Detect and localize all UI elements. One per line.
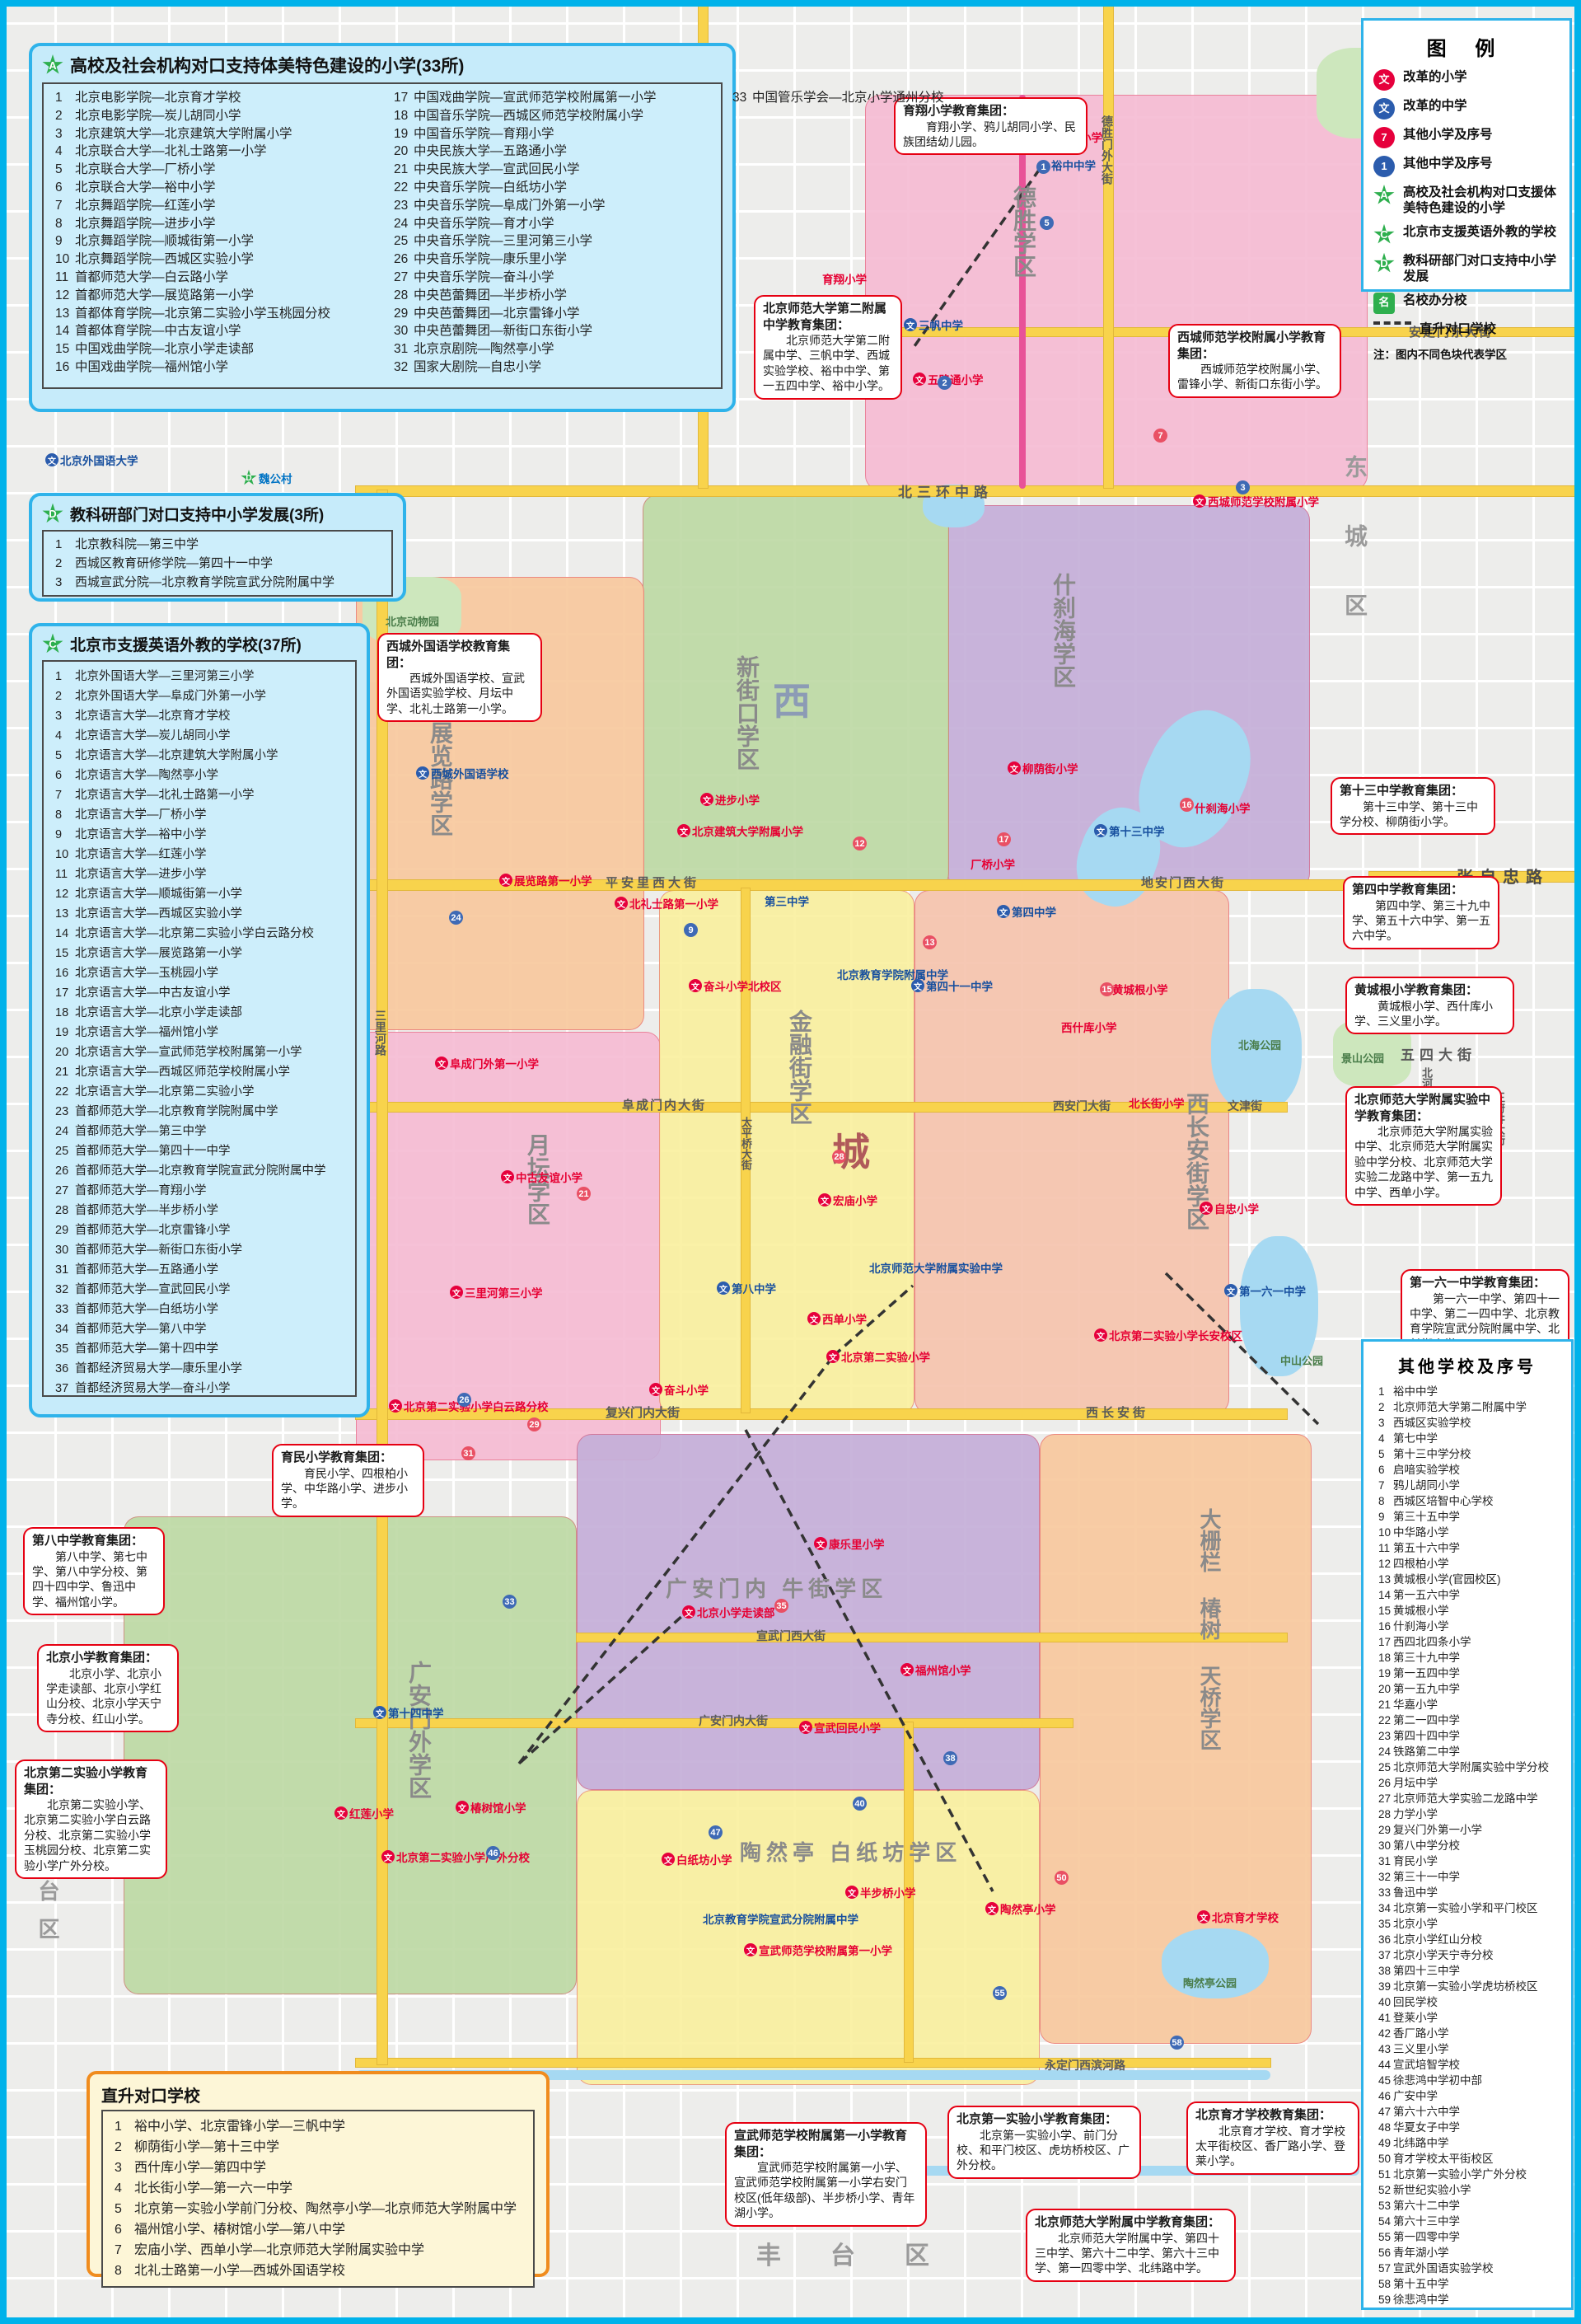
school-number-marker: 31 <box>461 1446 475 1460</box>
callout-title: 育民小学教育集团： <box>281 1450 415 1466</box>
list-item: 15北京语言大学—展览路第一小学 <box>50 944 348 963</box>
map-text-label: 地安门西大街 <box>1141 874 1225 891</box>
education-group-callout: 北京师范大学附属中学教育集团：北京师范大学附属中学、第四十三中学、第六十二中学、… <box>1026 2209 1236 2282</box>
legend-item: 1其他中学及序号 <box>1373 156 1560 177</box>
map-text-label: 什刹海学区 <box>1046 573 1079 688</box>
map-text-label: 丰台区 <box>756 2235 979 2271</box>
list-item: 12四根柏小学 <box>1373 1556 1561 1572</box>
reform-middle-icon: 文 <box>1373 98 1395 119</box>
callout-body: 宣武师范学校附属第一小学、宣武师范学校附属第一小学右安门校区(低年级部)、半步桥… <box>734 2160 918 2221</box>
list-item: 3西什库小学—第四中学 <box>110 2158 526 2178</box>
school-number-marker: 55 <box>993 1986 1007 2000</box>
reform-primary-icon: 文 <box>744 1943 757 1956</box>
map-text-label: 永定门西滨河路 <box>1045 2057 1125 2073</box>
list-item: 2西城区教育研修学院—第四十一中学 <box>50 554 385 573</box>
list-item: 7北京语言大学—北礼士路第一小学 <box>50 785 348 805</box>
map-text-label: 德胜学区 <box>1007 185 1040 278</box>
school-label: 文北京建筑大学附属小学 <box>677 822 803 839</box>
through-admission-line-icon <box>1373 321 1411 325</box>
school-number-marker: 9 <box>684 923 698 937</box>
reform-primary-icon: 文 <box>1193 494 1206 508</box>
list-item: 30中央芭蕾舞团—新街口东街小学 <box>389 322 714 340</box>
road-xuanwumenxi <box>577 1633 1287 1642</box>
list-item: 23第四十四中学 <box>1373 1728 1561 1744</box>
list-item: 1裕中小学、北京雷锋小学—三帆中学 <box>110 2116 526 2137</box>
star-c-icon: C <box>42 634 63 655</box>
list-item: 41登莱小学 <box>1373 2010 1561 2026</box>
list-item: 25北京师范大学附属实验中学分校 <box>1373 1759 1561 1775</box>
list-item: 29首都师范大学—北京雷锋小学 <box>50 1221 348 1240</box>
school-label: 文北京第二实验小学长安校区 <box>1094 1327 1242 1343</box>
list-box-d-title: 教科研部门对口支持中小学发展(3所) <box>70 503 324 525</box>
callout-title: 北京第二实验小学教育集团： <box>24 1765 158 1797</box>
school-label: 文红莲小学 <box>334 1805 394 1821</box>
through-admission-items: 1裕中小学、北京雷锋小学—三帆中学2柳荫街小学—第十三中学3西什库小学—第四中学… <box>110 2116 526 2281</box>
list-item: 22中央音乐学院—白纸坊小学 <box>389 179 714 197</box>
map-text-label: 东城区 <box>1338 455 1371 663</box>
school-label: 文阜成门外第一小学 <box>435 1055 539 1071</box>
list-item: 53第六十二中学 <box>1373 2198 1561 2214</box>
callout-title: 北京第一实验小学教育集团： <box>957 2111 1132 2128</box>
school-number-marker: 40 <box>853 1797 867 1811</box>
list-item: 43三义里小学 <box>1373 2041 1561 2057</box>
school-label: 文椿树馆小学 <box>456 1799 526 1816</box>
school-label: 文白纸坊小学 <box>662 1851 732 1867</box>
reform-primary-icon: 文 <box>1373 69 1395 91</box>
list-item: 2北京电影学院—炭儿胡同小学 <box>50 107 376 125</box>
callout-title: 北京师范大学附属实验中学教育集团： <box>1354 1092 1493 1124</box>
list-item: 35北京小学 <box>1373 1916 1561 1932</box>
education-group-callout: 北京第二实验小学教育集团：北京第二实验小学、北京第二实验小学白云路分校、北京第二… <box>15 1759 167 1879</box>
education-group-callout: 西城师范学校附属小学教育集团：西城师范学校附属小学、雷锋小学、新街口东街小学。 <box>1168 324 1341 398</box>
district-guangwai-shape <box>124 1516 577 1994</box>
list-item: 19中国音乐学院—育翔小学 <box>389 125 714 143</box>
school-number-marker: 38 <box>943 1751 957 1765</box>
list-item: 3西城区实验学校 <box>1373 1415 1561 1431</box>
reform-middle-icon: 文 <box>904 318 917 331</box>
list-item: 1北京电影学院—北京育才学校 <box>50 89 376 107</box>
map-text-label: 平安里西大街 <box>606 874 699 891</box>
school-label: 黄城根小学 <box>1112 981 1168 997</box>
map-text-label: 北海公园 <box>1238 1037 1281 1052</box>
list-item: 21中央民族大学—宣武回民小学 <box>389 161 714 179</box>
map-stage: A 高校及社会机构对口支持体美特色建设的小学(33所) 1北京电影学院—北京育才… <box>0 0 1581 2324</box>
list-item: 6北京联合大学—裕中小学 <box>50 179 376 197</box>
callout-body: 北京第二实验小学、北京第二实验小学白云路分校、北京第二实验小学玉桃园分校、北京第… <box>24 1797 158 1873</box>
list-item: 27首都师范大学—育翔小学 <box>50 1181 348 1201</box>
callout-title: 第一六一中学教育集团： <box>1410 1275 1560 1291</box>
education-group-callout: 第十三中学教育集团：第十三中学、第十三中学分校、柳荫街小学。 <box>1331 777 1495 835</box>
list-item: 26中央音乐学院—康乐里小学 <box>389 251 714 269</box>
education-group-callout: 宣武师范学校附属第一小学教育集团：宣武师范学校附属第一小学、宣武师范学校附属第一… <box>725 2122 927 2227</box>
list-box-c-items: 1北京外国语大学—三里河第三小学2北京外国语大学—阜成门外第一小学3北京语言大学… <box>50 667 348 1399</box>
school-label: 文半步桥小学 <box>845 1884 916 1900</box>
list-item: 14第一五六中学 <box>1373 1587 1561 1603</box>
list-item: 29复兴门外第一小学 <box>1373 1822 1561 1838</box>
education-group-callout: 北京师范大学附属实验中学教育集团：北京师范大学附属实验中学、北京师范大学附属实验… <box>1345 1086 1502 1206</box>
road-deshengmenwai <box>1104 7 1113 488</box>
list-item: 9北京语言大学—裕中小学 <box>50 825 348 845</box>
list-item: 29中央芭蕾舞团—北京雷锋小学 <box>389 305 714 323</box>
map-text-label: 德胜门外大街 <box>1099 115 1116 185</box>
reform-middle-icon: 文 <box>997 905 1010 918</box>
through-admission-box: 直升对口学校 1裕中小学、北京雷锋小学—三帆中学2柳荫街小学—第十三中学3西什库… <box>87 2071 550 2277</box>
legend-item-label: 北京市支援英语外教的学校 <box>1403 224 1556 240</box>
callout-body: 北京师范大学附属实验中学、北京师范大学附属实验中学分校、北京师范大学实验二龙路中… <box>1354 1124 1493 1200</box>
legend-item: 文改革的小学 <box>1373 69 1560 91</box>
list-item: 11首都师范大学—白云路小学 <box>50 269 376 287</box>
school-number-marker: 15 <box>1100 982 1114 996</box>
map-text-label: 宣武门西大街 <box>756 1628 826 1644</box>
reform-primary-icon: 文 <box>845 1886 858 1899</box>
legend-box: 图 例 文改革的小学文改革的中学7其他小学及序号1其他中学及序号A高校及社会机构… <box>1361 18 1572 292</box>
reform-primary-icon: 文 <box>1008 761 1021 775</box>
list-item: 21北京语言大学—西城区师范学校附属小学 <box>50 1062 348 1082</box>
list-item: 28首都师范大学—半步桥小学 <box>50 1201 348 1221</box>
list-item: 51北京第一实验小学广外分校 <box>1373 2167 1561 2182</box>
callout-body: 西城外国语学校、宣武外国语实验学校、月坛中学、北礼士路第一小学。 <box>386 671 533 716</box>
list-item: 10中华路小学 <box>1373 1525 1561 1540</box>
reform-primary-icon: 文 <box>389 1399 402 1413</box>
reform-primary-icon: 文 <box>900 1663 914 1676</box>
through-admission-title: 直升对口学校 <box>101 2083 535 2106</box>
school-label: 北京教育学院宣武分院附属中学 <box>703 1910 858 1927</box>
school-label: 文第四十一中学 <box>911 977 993 994</box>
education-group-callout: 第八中学教育集团：第八中学、第七中学、第八中学分校、第四十四中学、鲁迅中学、福州… <box>23 1527 165 1615</box>
reform-primary-icon: 文 <box>807 1312 821 1325</box>
reform-primary-icon: 文 <box>456 1801 469 1814</box>
list-item: 42香厂路小学 <box>1373 2026 1561 2041</box>
list-item: 59徐悲鸿中学 <box>1373 2292 1561 2308</box>
list-item: 5北京联合大学—厂桥小学 <box>50 161 376 179</box>
list-item: 13首都体育学院—北京第二实验小学玉桃园分校 <box>50 305 376 323</box>
list-box-research-depts: D 教科研部门对口支持中小学发展(3所) 1北京教科院—第三中学2西城区教育研修… <box>29 493 406 602</box>
school-number-marker: 12 <box>853 836 867 850</box>
list-item: 1北京外国语大学—三里河第三小学 <box>50 667 348 686</box>
list-item: 34北京第一实验小学和平门校区 <box>1373 1900 1561 1916</box>
list-item: 27中央音乐学院—奋斗小学 <box>389 269 714 287</box>
reform-middle-icon: 文 <box>373 1706 386 1719</box>
list-item: 1裕中中学 <box>1373 1384 1561 1399</box>
reform-primary-icon: 文 <box>435 1057 448 1070</box>
callout-body: 西城师范学校附属小学、雷锋小学、新街口东街小学。 <box>1177 362 1332 392</box>
list-item: 2柳荫街小学—第十三中学 <box>110 2137 526 2158</box>
list-item: 17北京语言大学—中古友谊小学 <box>50 983 348 1003</box>
school-label: 文北京第二实验小学 <box>826 1348 930 1365</box>
list-item: 5北京第一实验小学前门分校、陶然亭小学—北京师范大学附属中学 <box>110 2199 526 2219</box>
other-schools-title: 其他学校及序号 <box>1373 1353 1561 1377</box>
school-number-marker: 28 <box>832 1150 846 1164</box>
school-number-marker: 35 <box>774 1599 788 1613</box>
reform-primary-icon: 文 <box>662 1853 675 1866</box>
list-item: 33鲁迅中学 <box>1373 1885 1561 1900</box>
map-text-label: 陶然亭公园 <box>1183 1975 1237 1990</box>
school-number-marker: 16 <box>1180 798 1194 812</box>
list-item: 20中央民族大学—五路通小学 <box>389 143 714 161</box>
list-item: 11第五十六中学 <box>1373 1540 1561 1556</box>
famous-branch-icon: 名 <box>1373 293 1395 314</box>
map-text-label: 复兴门内大街 <box>606 1403 680 1421</box>
list-item: 3北京建筑大学—北京建筑大学附属小学 <box>50 125 376 143</box>
legend-item-label: 其他中学及序号 <box>1403 156 1493 171</box>
reform-middle-icon: 文 <box>416 766 429 780</box>
list-item: 2北京师范大学第二附属中学 <box>1373 1399 1561 1415</box>
school-label: 文第八中学 <box>717 1280 776 1296</box>
school-number-marker: 46 <box>486 1846 500 1860</box>
callout-body: 第八中学、第七中学、第八中学分校、第四十四中学、鲁迅中学、福州馆小学。 <box>32 1549 156 1610</box>
list-item: 4第七中学 <box>1373 1431 1561 1446</box>
map-text-label: 广安门外学区 <box>402 1661 435 1799</box>
reform-middle-icon: 文 <box>1224 1284 1237 1297</box>
list-item: 13黄城根小学(官园校区) <box>1373 1572 1561 1587</box>
school-number-marker: 58 <box>1170 2036 1184 2050</box>
list-item: 32国家大剧院—自忠小学 <box>389 358 714 377</box>
list-item: 27北京师范大学实验二龙路中学 <box>1373 1791 1561 1806</box>
list-item: 12首都师范大学—展览路第一小学 <box>50 287 376 305</box>
map-text-label: 大栅栏 椿树 天桥学区 <box>1195 1508 1225 1750</box>
reform-primary-icon: 文 <box>677 824 690 837</box>
reform-primary-icon: 文 <box>682 1605 695 1619</box>
list-item: 8北礼士路第一小学—西城外国语学校 <box>110 2261 526 2281</box>
legend-item-label: 其他小学及序号 <box>1403 127 1493 143</box>
legend-item-label: 改革的小学 <box>1403 69 1467 85</box>
reform-middle-icon: 文 <box>1094 824 1107 837</box>
list-item: 37首都经济贸易大学—奋斗小学 <box>50 1379 348 1399</box>
callout-title: 北京师范大学第二附属中学教育集团： <box>763 301 893 333</box>
list-item: 7北京舞蹈学院—红莲小学 <box>50 197 376 215</box>
reform-primary-icon: 文 <box>814 1537 827 1550</box>
school-label: 西什库小学 <box>1061 1019 1117 1035</box>
school-number-marker: 33 <box>503 1595 517 1609</box>
school-label: 文中古友谊小学 <box>501 1169 582 1185</box>
legend-item: 直升对口学校 <box>1373 321 1560 337</box>
list-item: 16中国戏曲学院—福州馆小学 <box>50 358 376 377</box>
school-label: 文第十三中学 <box>1094 822 1165 839</box>
list-item: 55第一四零中学 <box>1373 2229 1561 2245</box>
list-item: 46广安中学 <box>1373 2088 1561 2104</box>
legend-item: 7其他小学及序号 <box>1373 127 1560 148</box>
school-label: 什刹海小学 <box>1195 799 1251 816</box>
school-label: 文第十四中学 <box>373 1704 444 1721</box>
reform-primary-icon: 文 <box>450 1286 463 1299</box>
school-label: 北京师范大学附属实验中学 <box>869 1259 1003 1276</box>
list-item: 28中央芭蕾舞团—半步桥小学 <box>389 287 714 305</box>
callout-title: 第八中学教育集团： <box>32 1533 156 1549</box>
list-item: 8北京舞蹈学院—进步小学 <box>50 215 376 233</box>
map-text-label: 阜成门内大街 <box>622 1096 706 1113</box>
reform-primary-icon: 文 <box>689 979 702 992</box>
primary-number-icon: 7 <box>1373 127 1395 148</box>
list-item: 3西城宣武分院—北京教育学院宣武分院附属中学 <box>50 573 385 592</box>
legend-items: 文改革的小学文改革的中学7其他小学及序号1其他中学及序号A高校及社会机构对口支援… <box>1373 69 1560 337</box>
school-label: 文三里河第三小学 <box>450 1284 543 1300</box>
school-number-marker: 21 <box>577 1187 591 1201</box>
legend-item-label: 高校及社会机构对口支援体美特色建设的小学 <box>1403 185 1560 217</box>
road-sanlihe <box>377 490 387 2064</box>
star-a-icon: A <box>42 54 63 76</box>
list-item: 7鸦儿胡同小学 <box>1373 1478 1561 1493</box>
list-box-a-items: 1北京电影学院—北京育才学校2北京电影学院—炭儿胡同小学3北京建筑大学—北京建筑… <box>50 89 714 382</box>
list-item: 25首都师范大学—第四十一中学 <box>50 1141 348 1161</box>
legend-item-label: 改革的中学 <box>1403 98 1467 114</box>
map-text-label: 广安门内 牛街学区 <box>666 1572 887 1603</box>
other-schools-items: 1裕中中学2北京师范大学第二附属中学3西城区实验学校4第七中学5第十三中学分校6… <box>1373 1384 1561 2308</box>
school-label: 厂桥小学 <box>971 855 1015 872</box>
legend-item: C北京市支援英语外教的学校 <box>1373 224 1560 246</box>
star-a-icon: A <box>1373 185 1395 206</box>
star-d-icon: D <box>42 504 63 525</box>
list-item: 18中国音乐学院—西城区师范学校附属小学 <box>389 107 714 125</box>
education-group-callout: 育民小学教育集团：育民小学、四根柏小学、中华路小学、进步小学。 <box>272 1444 424 1517</box>
callout-title: 第十三中学教育集团： <box>1340 783 1486 799</box>
list-item: 38第四十三中学 <box>1373 1963 1561 1979</box>
list-item: 40回民学校 <box>1373 1994 1561 2010</box>
education-group-callout: 北京育才学校教育集团：北京育才学校、育才学校太平街校区、香厂路小学、登莱小学。 <box>1186 2101 1359 2175</box>
list-item: 52新世纪实验小学 <box>1373 2182 1561 2198</box>
list-item: 24中央音乐学院—育才小学 <box>389 215 714 233</box>
reform-middle-icon: 文 <box>717 1281 730 1295</box>
reform-primary-icon: 文 <box>913 372 926 386</box>
callout-title: 北京小学教育集团： <box>46 1650 170 1666</box>
other-schools-box: 其他学校及序号 1裕中中学2北京师范大学第二附属中学3西城区实验学校4第七中学5… <box>1361 1339 1574 2310</box>
list-item: 2北京外国语大学—阜成门外第一小学 <box>50 686 348 706</box>
callout-title: 宣武师范学校附属第一小学教育集团： <box>734 2128 918 2160</box>
list-item: 56青年湖小学 <box>1373 2245 1561 2261</box>
map-text-label: 北京动物园 <box>386 613 439 629</box>
list-item: 20第一五九中学 <box>1373 1681 1561 1697</box>
legend-item-label: 名校办分校 <box>1403 293 1467 308</box>
list-item: 17中国戏曲学院—宣武师范学校附属第一小学 <box>389 89 714 107</box>
list-item: 14首都体育学院—中古友谊小学 <box>50 322 376 340</box>
list-item: 50育才学校太平街校区 <box>1373 2151 1561 2167</box>
school-label: 第三中学 <box>765 893 809 909</box>
school-number-marker: 17 <box>997 832 1011 846</box>
list-item: 31首都师范大学—五路通小学 <box>50 1260 348 1280</box>
list-item: 26首都师范大学—北京教育学院宣武分院附属中学 <box>50 1161 348 1181</box>
map-text-label: 文津街 <box>1228 1098 1262 1114</box>
callout-body: 第四中学、第三十九中学、第五十六中学、第一五六中学。 <box>1352 898 1490 944</box>
callout-title: 第四中学教育集团： <box>1352 882 1490 898</box>
list-item: 13北京语言大学—西城区实验小学 <box>50 904 348 924</box>
map-text-label: 西 <box>773 672 811 726</box>
list-item: 16北京语言大学—玉桃园小学 <box>50 963 348 983</box>
school-label: 文陶然亭小学 <box>985 1900 1056 1917</box>
list-item: 31北京京剧院—陶然亭小学 <box>389 340 714 358</box>
reform-primary-icon: 文 <box>818 1193 831 1207</box>
legend-item: 文改革的中学 <box>1373 98 1560 119</box>
education-group-callout: 北京第一实验小学教育集团：北京第一实验小学、前门分校、和平门校区、虎坊桥校区、广… <box>947 2106 1141 2179</box>
list-item: 22北京语言大学—北京第二实验小学 <box>50 1082 348 1102</box>
list-item: 14北京语言大学—北京第二实验小学白云路分校 <box>50 924 348 944</box>
list-item: 23中央音乐学院—阜成门外第一小学 <box>389 197 714 215</box>
school-label: 文福州馆小学 <box>900 1661 971 1678</box>
middle-number-icon: 1 <box>1373 156 1395 177</box>
callout-body: 育民小学、四根柏小学、中华路小学、进步小学。 <box>281 1466 415 1511</box>
list-item: 44宣武培智学校 <box>1373 2057 1561 2073</box>
list-item: 10北京语言大学—红莲小学 <box>50 845 348 864</box>
reform-primary-icon: 文 <box>499 874 512 887</box>
list-item: 1北京教科院—第三中学 <box>50 535 385 554</box>
school-label: 文奋斗小学 <box>649 1381 709 1398</box>
callout-title: 黄城根小学教育集团： <box>1354 982 1505 999</box>
callout-title: 西城外国语学校教育集团： <box>386 639 533 671</box>
list-item: 28力学小学 <box>1373 1806 1561 1822</box>
list-item: 36首都经济贸易大学—康乐里小学 <box>50 1359 348 1379</box>
list-item: 19第一五四中学 <box>1373 1666 1561 1681</box>
school-label: 文自忠小学 <box>1200 1200 1259 1216</box>
list-item: 18北京语言大学—北京小学走读部 <box>50 1003 348 1023</box>
map-text-label: 中山公园 <box>1280 1352 1323 1368</box>
school-number-marker: 13 <box>923 935 937 949</box>
school-label: 文第四中学 <box>997 903 1056 920</box>
school-label: 文宣武回民小学 <box>799 1719 881 1736</box>
list-item: 22第二一四中学 <box>1373 1713 1561 1728</box>
legend-note: 注：图内不同色块代表学区 <box>1373 345 1560 362</box>
school-label: 文宏庙小学 <box>818 1192 877 1208</box>
list-item: 49北纬路中学 <box>1373 2135 1561 2151</box>
list-item: 24铁路第二中学 <box>1373 1744 1561 1759</box>
list-item: 17西四北四条小学 <box>1373 1634 1561 1650</box>
school-label: 文北京育才学校 <box>1197 1909 1279 1925</box>
map-text-label: 西长安街 <box>1086 1403 1148 1421</box>
star-c-icon: C <box>1373 224 1395 246</box>
list-item: 15中国戏曲学院—北京小学走读部 <box>50 340 376 358</box>
map-text-label: 五四大街 <box>1401 1043 1476 1064</box>
list-box-english-support: C 北京市支援英语外教的学校(37所) 1北京外国语大学—三里河第三小学2北京外… <box>29 623 370 1417</box>
legend-item: A高校及社会机构对口支援体美特色建设的小学 <box>1373 185 1560 217</box>
reform-middle-icon: 文 <box>45 453 58 466</box>
district-yuetan-shape <box>356 1032 661 1460</box>
school-number-marker: 26 <box>457 1393 471 1407</box>
callout-body: 黄城根小学、西什库小学、三义里小学。 <box>1354 999 1505 1029</box>
list-box-a-title: 高校及社会机构对口支持体美特色建设的小学(33所) <box>70 53 464 77</box>
list-item: 57宣武外国语实验学校 <box>1373 2261 1561 2276</box>
list-item: 24首都师范大学—第三中学 <box>50 1122 348 1141</box>
callout-body: 北京第一实验小学、前门分校、和平门校区、虎坊桥校区、广外分校。 <box>957 2128 1132 2173</box>
school-label: 文进步小学 <box>700 791 760 808</box>
legend-item: 名名校办分校 <box>1373 293 1560 314</box>
school-label: 裕中中学 <box>1051 157 1096 173</box>
school-label: 文康乐里小学 <box>814 1535 885 1552</box>
school-label: 文展览路第一小学 <box>499 872 592 888</box>
list-item: 8北京语言大学—厂桥小学 <box>50 805 348 825</box>
callout-body: 北京育才学校、育才学校太平街校区、香厂路小学、登莱小学。 <box>1195 2124 1350 2169</box>
list-item: 30第八中学分校 <box>1373 1838 1561 1853</box>
school-label: 文柳荫街小学 <box>1008 760 1078 776</box>
callout-body: 育翔小学、鸦儿胡同小学、民族团结幼儿园。 <box>903 119 1078 150</box>
list-item: 9第三十五中学 <box>1373 1509 1561 1525</box>
education-group-callout: 西城外国语学校教育集团：西城外国语学校、宣武外国语实验学校、月坛中学、北礼士路第… <box>377 633 542 722</box>
list-item: 9北京舞蹈学院—顺城街第一小学 <box>50 232 376 251</box>
map-text-label: 三里河路 <box>372 1010 389 1056</box>
school-number-marker: 29 <box>527 1417 541 1431</box>
school-number-marker: 3 <box>1236 480 1250 494</box>
school-label: 北长街小学 <box>1129 1094 1185 1111</box>
list-item: 6福州馆小学、椿树馆小学—第八中学 <box>110 2219 526 2240</box>
list-item: 30首都师范大学—新街口东街小学 <box>50 1240 348 1260</box>
reform-middle-icon: 文 <box>911 979 924 992</box>
map-text-label: 新街口学区 <box>730 655 763 771</box>
school-label: 育翔小学 <box>822 270 867 287</box>
legend-item-label: 教科研部门对口支持中小学发展 <box>1403 253 1560 285</box>
school-number-marker: 47 <box>709 1825 723 1839</box>
reform-primary-icon: 文 <box>501 1170 514 1183</box>
list-item: 19北京语言大学—福州馆小学 <box>50 1023 348 1043</box>
school-number-marker: 1 <box>1036 160 1050 174</box>
callout-title: 北京育才学校教育集团： <box>1195 2107 1350 2124</box>
list-item: 10北京舞蹈学院—西城区实验小学 <box>50 251 376 269</box>
reform-primary-icon: 文 <box>1197 1910 1210 1923</box>
